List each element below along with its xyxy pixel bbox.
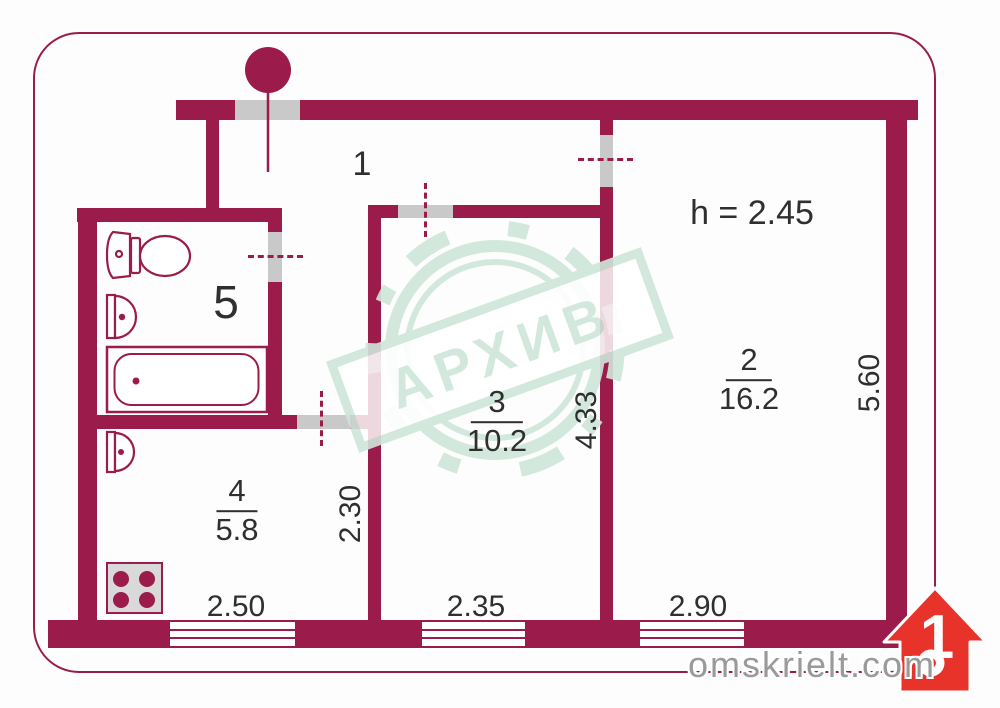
brand-logo-layer: 1	[0, 0, 1000, 708]
brand-name: omskrielt	[688, 644, 850, 685]
floor-plan-scene: АРХИВ 1 h = 2.45 5 2 16.2 3 10.2 4 5.8 2…	[0, 0, 1000, 708]
brand-tld: .com	[850, 644, 936, 685]
brand-watermark: omskrielt.com	[688, 644, 936, 686]
